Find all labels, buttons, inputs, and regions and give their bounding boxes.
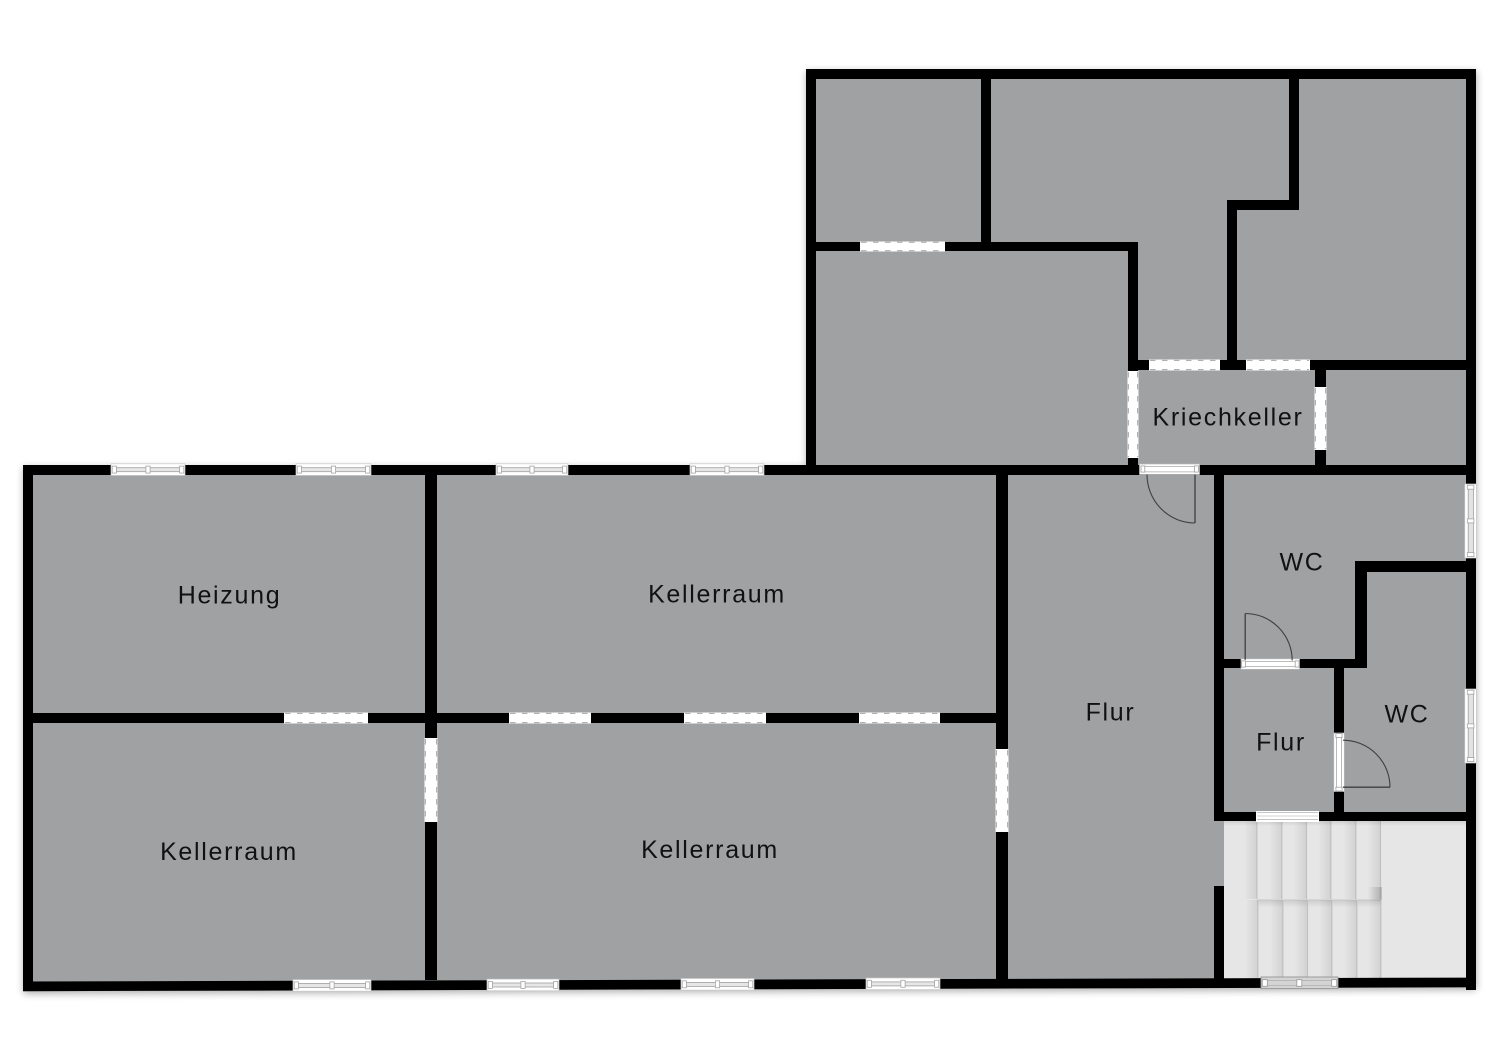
svg-text:Kellerraum: Kellerraum [648,581,786,609]
svg-text:WC: WC [1279,549,1324,577]
svg-text:Kriechkeller: Kriechkeller [1152,404,1303,432]
svg-text:WC: WC [1384,701,1429,729]
svg-text:Kellerraum: Kellerraum [641,836,779,864]
svg-text:Kellerraum: Kellerraum [160,838,298,866]
svg-text:Heizung: Heizung [178,582,282,610]
svg-text:Flur: Flur [1086,699,1136,727]
svg-text:Flur: Flur [1256,729,1306,757]
